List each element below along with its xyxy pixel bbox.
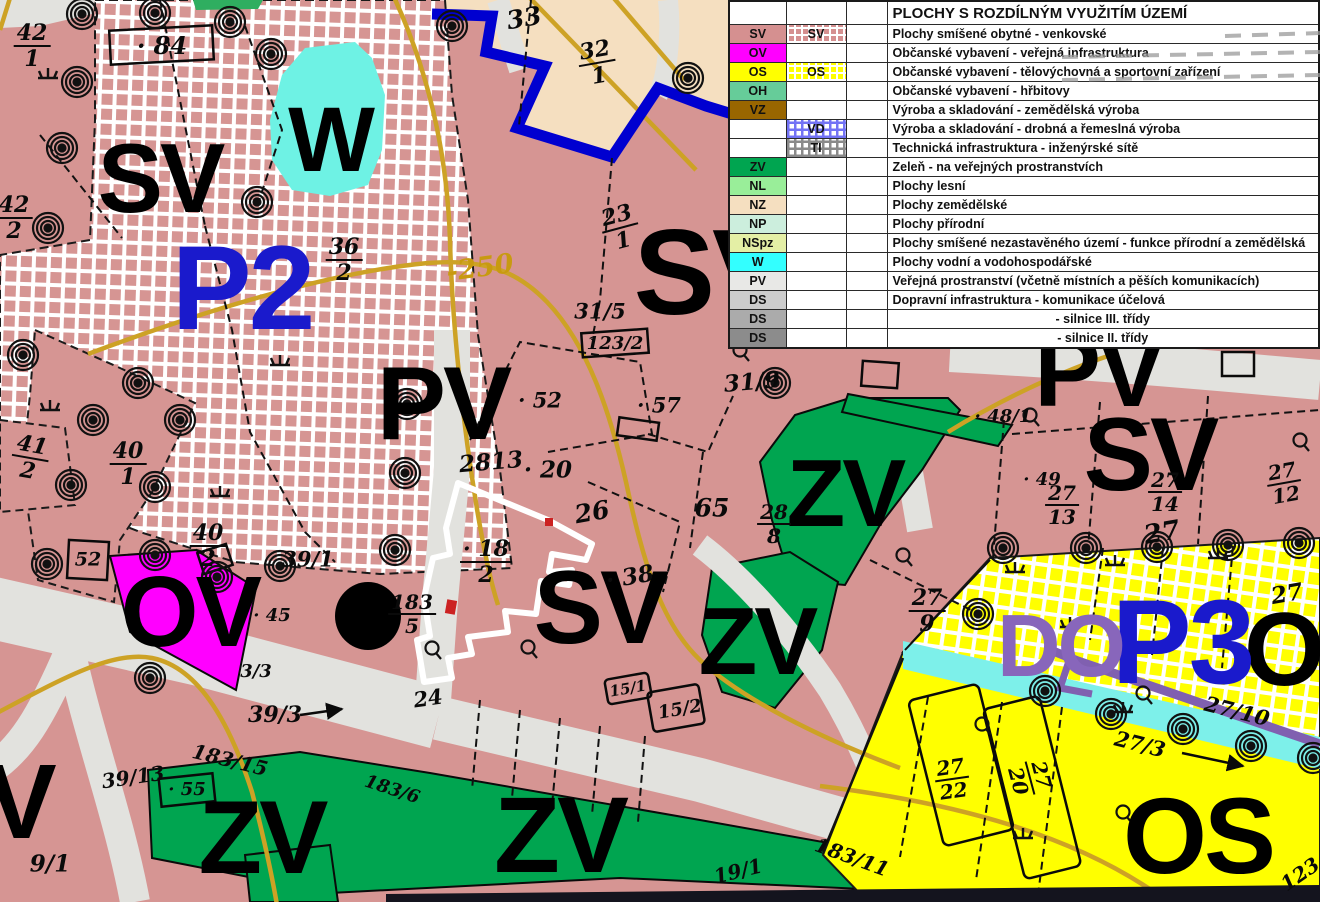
legend-row-TI: TITechnická infrastruktura - inženýrské … — [729, 139, 1319, 158]
legend-swatch — [786, 253, 846, 272]
legend-row-DS: DS- silnice II. třídy — [729, 329, 1319, 349]
legend-description: Plochy zemědělské — [887, 196, 1319, 215]
legend-code: PV — [729, 272, 786, 291]
legend-spacer — [846, 25, 887, 44]
legend-swatch — [786, 272, 846, 291]
legend-spacer — [846, 291, 887, 310]
legend-description: Veřejná prostranství (včetně místních a … — [887, 272, 1319, 291]
legend-swatch — [786, 177, 846, 196]
legend-row-PV: PVVeřejná prostranství (včetně místních … — [729, 272, 1319, 291]
legend-description: Technická infrastruktura - inženýrské sí… — [887, 139, 1319, 158]
legend-row-ZV: ZVZeleň - na veřejných prostranstvích — [729, 158, 1319, 177]
legend-row-OS: OSOSObčanské vybavení - tělovýchovná a s… — [729, 63, 1319, 82]
legend-spacer — [846, 120, 887, 139]
legend-code: NP — [729, 215, 786, 234]
legend-code: NSpz — [729, 234, 786, 253]
legend-spacer — [846, 310, 887, 329]
legend-description: Dopravní infrastruktura - komunikace úče… — [887, 291, 1319, 310]
legend-spacer — [846, 272, 887, 291]
legend-swatch: TI — [786, 139, 846, 158]
legend-spacer — [846, 139, 887, 158]
legend-row-DS: DSDopravní infrastruktura - komunikace ú… — [729, 291, 1319, 310]
legend-swatch — [786, 196, 846, 215]
legend-spacer — [846, 329, 887, 349]
legend-description: Plochy přírodní — [887, 215, 1319, 234]
legend-code: W — [729, 253, 786, 272]
legend-swatch — [786, 329, 846, 349]
legend-description: Výroba a skladování - drobná a řemeslná … — [887, 120, 1319, 139]
legend-row-NSpz: NSpzPlochy smíšené nezastavěného území -… — [729, 234, 1319, 253]
legend-description: Plochy lesní — [887, 177, 1319, 196]
legend-code: NL — [729, 177, 786, 196]
legend-code: DS — [729, 329, 786, 349]
legend-description: - silnice II. třídy — [887, 329, 1319, 349]
legend-swatch — [786, 310, 846, 329]
legend-row-NP: NPPlochy přírodní — [729, 215, 1319, 234]
legend-description: - silnice III. třídy — [887, 310, 1319, 329]
legend-spacer — [846, 215, 887, 234]
legend-row-VD: VDVýroba a skladování - drobná a řemesln… — [729, 120, 1319, 139]
legend-row-NZ: NZPlochy zemědělské — [729, 196, 1319, 215]
legend-swatch — [786, 82, 846, 101]
legend-swatch — [786, 234, 846, 253]
legend-code: SV — [729, 25, 786, 44]
legend-row-OH: OHObčanské vybavení - hřbitovy — [729, 82, 1319, 101]
legend-spacer — [846, 177, 887, 196]
legend-spacer — [846, 63, 887, 82]
legend-title: PLOCHY S ROZDÍLNÝM VYUŽITÍM ÚZEMÍ — [887, 1, 1319, 25]
legend-spacer — [846, 82, 887, 101]
legend-table: PLOCHY S ROZDÍLNÝM VYUŽITÍM ÚZEMÍ SVSVPl… — [728, 0, 1320, 349]
legend-code — [729, 139, 786, 158]
legend-code: OS — [729, 63, 786, 82]
legend-code: DS — [729, 310, 786, 329]
legend-swatch: SV — [786, 25, 846, 44]
legend-description: Občanské vybavení - veřejná infrastruktu… — [887, 44, 1319, 63]
legend-title-row: PLOCHY S ROZDÍLNÝM VYUŽITÍM ÚZEMÍ — [729, 1, 1319, 25]
legend-code: OV — [729, 44, 786, 63]
legend-spacer — [846, 196, 887, 215]
legend-spacer — [846, 234, 887, 253]
legend-row-DS: DS- silnice III. třídy — [729, 310, 1319, 329]
legend-code: ZV — [729, 158, 786, 177]
legend-row-NL: NLPlochy lesní — [729, 177, 1319, 196]
legend-row-OV: OVObčanské vybavení - veřejná infrastruk… — [729, 44, 1319, 63]
legend-swatch — [786, 101, 846, 120]
legend-code: OH — [729, 82, 786, 101]
legend-swatch — [786, 215, 846, 234]
legend-description: Výroba a skladování - zemědělská výroba — [887, 101, 1319, 120]
legend-row-W: WPlochy vodní a vodohospodářské — [729, 253, 1319, 272]
legend-code: DS — [729, 291, 786, 310]
zoning-map-canvas[interactable]: SVWP2SVPVSVZVZVPVSVOVZVZVOSOP3DOSV-250· … — [0, 0, 1320, 902]
legend-description: Občanské vybavení - tělovýchovná a sport… — [887, 63, 1319, 82]
legend-description: Plochy vodní a vodohospodářské — [887, 253, 1319, 272]
legend-code: VZ — [729, 101, 786, 120]
legend-description: Plochy smíšené nezastavěného území - fun… — [887, 234, 1319, 253]
legend-description: Plochy smíšené obytné - venkovské — [887, 25, 1319, 44]
legend-swatch — [786, 44, 846, 63]
legend-swatch: OS — [786, 63, 846, 82]
black-dot-symbol — [335, 582, 401, 650]
legend-swatch — [786, 291, 846, 310]
legend-spacer — [846, 44, 887, 63]
legend-description: Zeleň - na veřejných prostranstvích — [887, 158, 1319, 177]
legend-spacer — [846, 253, 887, 272]
legend-code — [729, 120, 786, 139]
legend-spacer — [846, 101, 887, 120]
legend-row-SV: SVSVPlochy smíšené obytné - venkovské — [729, 25, 1319, 44]
legend-code: NZ — [729, 196, 786, 215]
legend-swatch: VD — [786, 120, 846, 139]
legend-description: Občanské vybavení - hřbitovy — [887, 82, 1319, 101]
legend-row-VZ: VZVýroba a skladování - zemědělská výrob… — [729, 101, 1319, 120]
legend-swatch — [786, 158, 846, 177]
legend-spacer — [846, 158, 887, 177]
